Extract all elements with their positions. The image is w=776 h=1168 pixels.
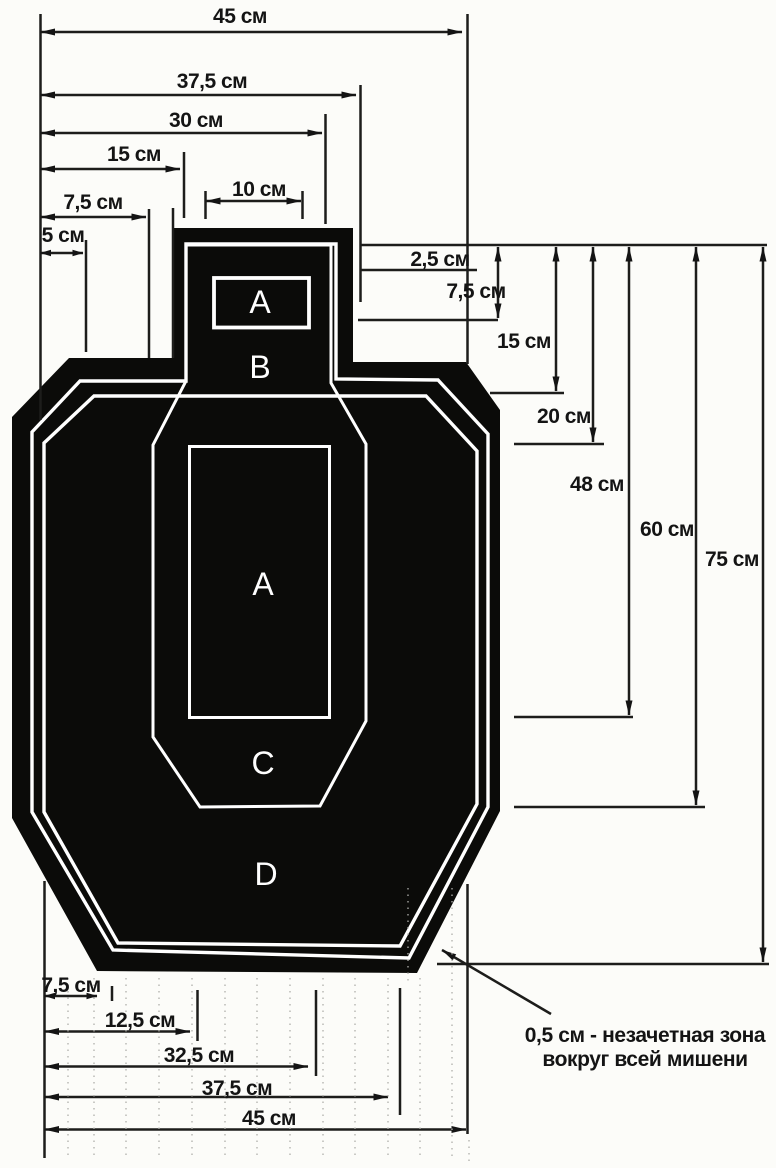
svg-text:C: C [251, 745, 274, 781]
svg-text:вокруг всей мишени: вокруг всей мишени [542, 1048, 747, 1071]
svg-text:7,5 см: 7,5 см [41, 974, 100, 997]
svg-text:7,5 см: 7,5 см [63, 191, 122, 214]
svg-text:15 см: 15 см [497, 330, 551, 353]
svg-text:20 см: 20 см [537, 405, 591, 428]
svg-text:10 см: 10 см [232, 178, 286, 201]
svg-text:45 см: 45 см [242, 1107, 296, 1130]
svg-text:37,5 см: 37,5 см [202, 1077, 272, 1100]
svg-text:0,5 см - незачетная зона: 0,5 см - незачетная зона [525, 1024, 766, 1047]
svg-text:12,5 см: 12,5 см [105, 1009, 175, 1032]
svg-text:A: A [252, 566, 274, 602]
svg-text:48 см: 48 см [570, 473, 624, 496]
svg-text:B: B [249, 349, 270, 385]
svg-text:45 см: 45 см [213, 5, 267, 28]
svg-text:37,5 см: 37,5 см [177, 70, 247, 93]
svg-text:30 см: 30 см [169, 109, 223, 132]
svg-text:32,5 см: 32,5 см [164, 1044, 234, 1067]
svg-text:7,5 см: 7,5 см [446, 280, 505, 303]
svg-text:15 см: 15 см [107, 143, 161, 166]
svg-text:2,5 см: 2,5 см [410, 248, 469, 271]
svg-text:5 см: 5 см [42, 224, 85, 247]
svg-text:D: D [254, 856, 277, 892]
svg-text:75 см: 75 см [705, 548, 759, 571]
svg-text:60 см: 60 см [640, 518, 694, 541]
svg-text:A: A [249, 284, 271, 320]
